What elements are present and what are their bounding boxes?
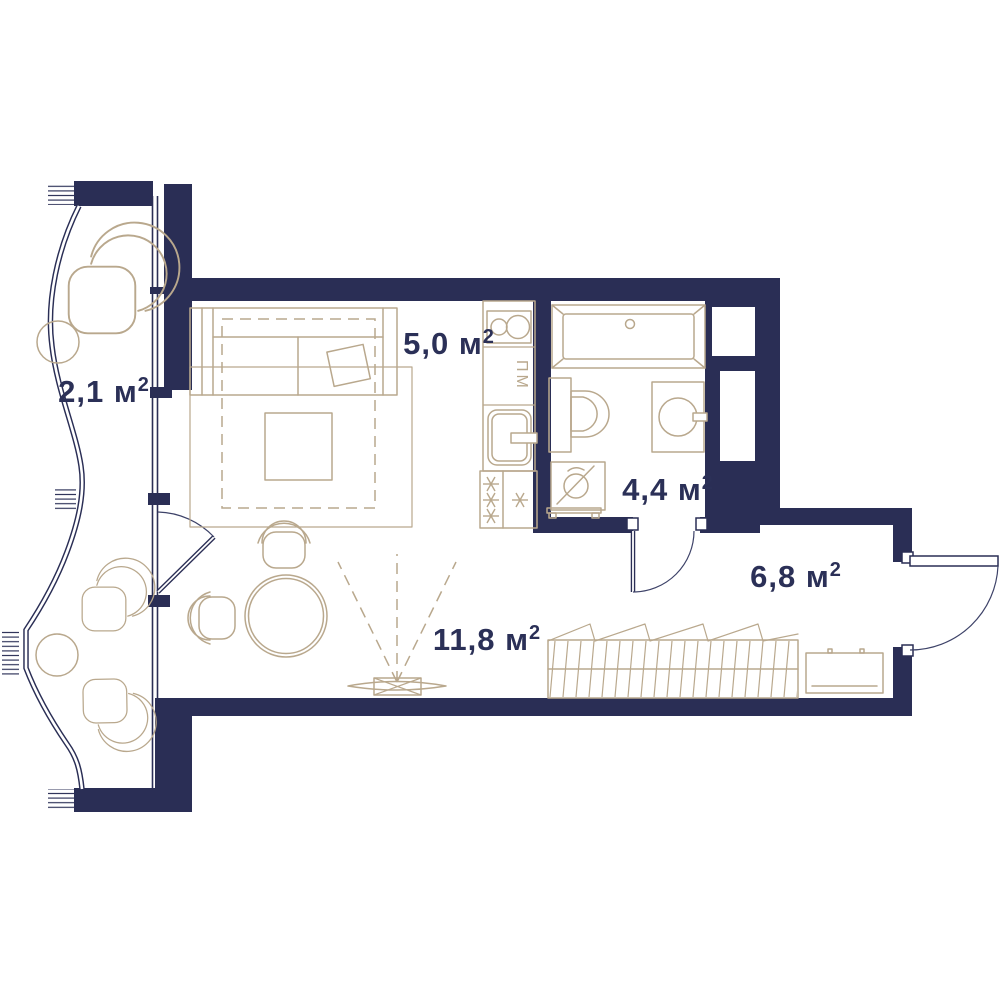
kitchen-area-label: 5,0 м2	[403, 326, 495, 361]
wardrobe	[548, 624, 798, 698]
kitchen-sink	[488, 410, 537, 465]
dishwasher-label: ПМ	[513, 360, 530, 391]
bathroom-door-swing-arc	[633, 531, 694, 592]
dining-chair	[188, 592, 235, 644]
bathroom-door	[627, 518, 707, 592]
floor-plan-drawing: ПМ	[0, 0, 1000, 1000]
balcony-furniture	[35, 202, 199, 764]
bathroom-south-wall-left	[533, 517, 633, 533]
side-table	[36, 634, 78, 676]
hallway-area-label: 6,8 м2	[750, 559, 842, 594]
balcony-door	[158, 512, 214, 592]
entrance-door-swing-arc	[910, 566, 998, 650]
window-mullion-tick-3	[148, 493, 170, 505]
washbasin	[547, 462, 605, 518]
sofa	[190, 308, 397, 395]
hallway-cabinet	[806, 649, 883, 693]
floor-plan: ПМ	[0, 0, 1000, 1000]
faucet	[511, 433, 537, 443]
north-wall	[190, 278, 780, 301]
dining-table-inner	[249, 579, 324, 654]
hatch-pinch	[2, 630, 19, 677]
bathroom-south-wall-right	[700, 517, 760, 533]
dining-table	[245, 575, 327, 657]
viewing-ray	[338, 562, 397, 682]
entrance-door	[902, 552, 998, 656]
entrance-door-leaf	[910, 556, 998, 566]
living-room-furniture	[188, 308, 456, 695]
side-table	[37, 321, 79, 363]
hallway-furniture	[548, 624, 883, 698]
toilet-tank	[549, 378, 571, 452]
living-room-area-label: 11,8 м2	[433, 622, 541, 657]
west-wall-lower-segment	[155, 698, 192, 812]
drain	[626, 320, 635, 329]
balcony-area-label: 2,1 м2	[58, 374, 150, 409]
hallway-north-wall	[760, 508, 912, 525]
door-jamb	[627, 518, 638, 530]
wall-hatch-marks	[2, 184, 76, 811]
ventilation-shaft-upper	[712, 307, 755, 356]
coffee-table	[265, 413, 332, 480]
dining-chair	[258, 521, 310, 568]
door-jamb	[696, 518, 707, 530]
burner	[483, 509, 499, 523]
pillow	[327, 344, 370, 386]
ventilation-shaft-lower	[720, 371, 755, 461]
washing-machine	[652, 382, 707, 452]
door-handle	[693, 413, 707, 421]
burner	[512, 493, 528, 507]
bathtub	[552, 305, 705, 368]
furniture-zone-outline	[190, 367, 412, 527]
balcony-door-swing-arc	[158, 512, 214, 537]
balcony-bottom-slab	[74, 788, 155, 812]
hatch-top	[48, 184, 75, 205]
bathroom-area-label: 4,4 м2	[622, 472, 714, 507]
south-wall	[190, 698, 912, 716]
balcony-top-slab	[74, 181, 153, 206]
burner	[483, 493, 499, 507]
hanger-rail	[548, 624, 798, 641]
hatch-bottom	[48, 789, 75, 811]
burner	[483, 477, 499, 491]
hatch-mid	[55, 487, 76, 510]
toilet	[549, 378, 609, 452]
stove	[480, 471, 537, 528]
